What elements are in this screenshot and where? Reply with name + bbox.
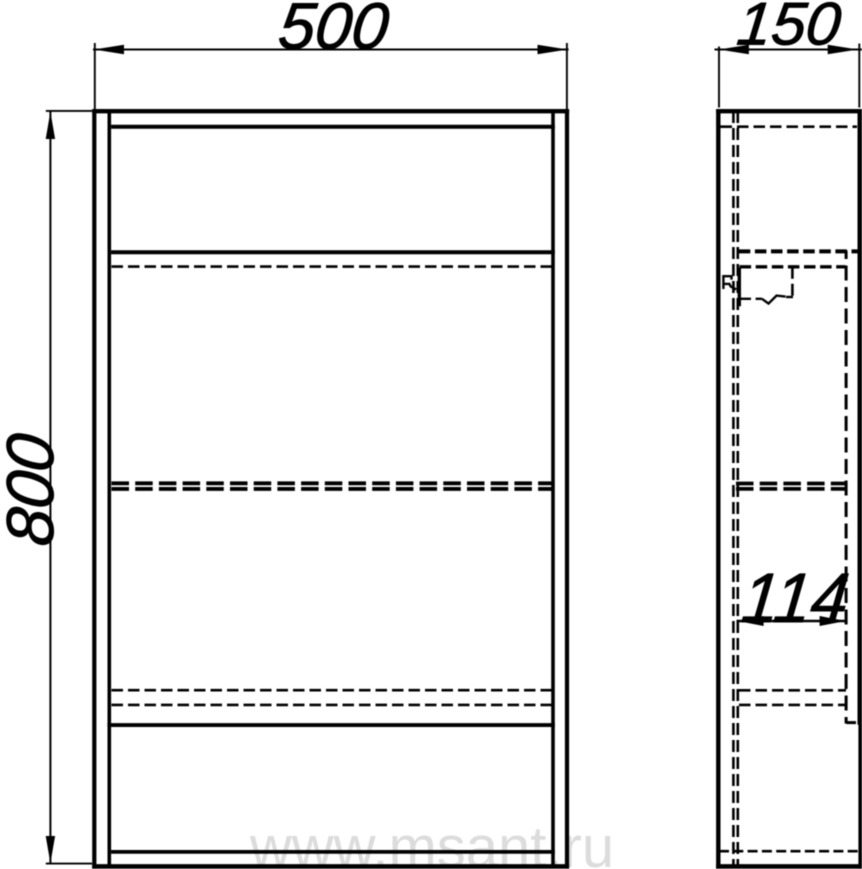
svg-text:114: 114 (738, 559, 852, 638)
svg-text:150: 150 (734, 0, 844, 57)
svg-text:800: 800 (0, 430, 68, 549)
svg-text:www.msant.ru: www.msant.ru (249, 815, 614, 869)
svg-text:500: 500 (275, 0, 392, 62)
